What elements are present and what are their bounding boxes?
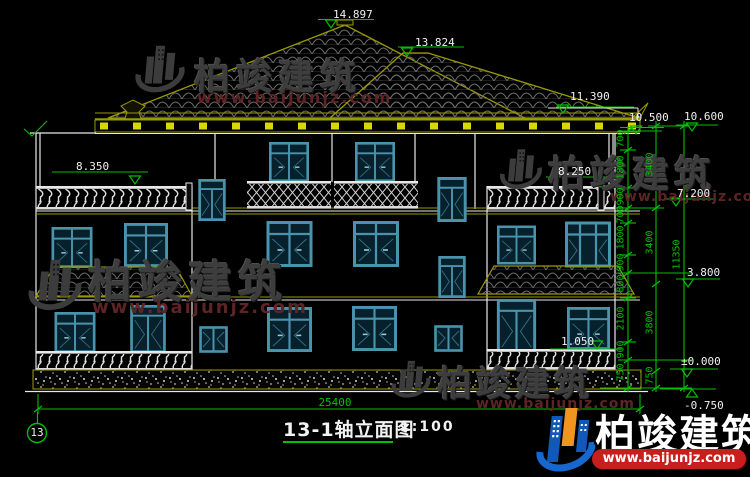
elevation-label: 13.824 <box>415 36 455 49</box>
drawing-scale: 1:100 <box>400 419 455 435</box>
dim-label: 750 <box>645 356 656 396</box>
balcony-railing <box>334 181 418 209</box>
porch-balustrade <box>36 351 192 370</box>
elevation-label: 8.350 <box>76 160 109 173</box>
small-window <box>201 328 227 352</box>
window <box>270 143 307 180</box>
window <box>567 223 610 266</box>
watermark-url: www.baijunjz.com <box>197 88 392 107</box>
elevation-label: 3.800 <box>687 266 720 279</box>
elevation-label: ±0.000 <box>681 355 721 368</box>
parapet-balustrade <box>36 183 192 210</box>
elevation-label: 10.500 <box>629 111 669 124</box>
elevation-label: 11.390 <box>570 90 610 103</box>
elevation-label: 8.250 <box>558 165 591 178</box>
overall-width-dim: 25400 <box>305 396 365 409</box>
cad-elevation-drawing: 柏竣建筑 www.baijunjz.com 柏竣建筑 www.baijunjz.… <box>0 0 750 477</box>
dim-label: 3400 <box>645 145 656 185</box>
roofs <box>108 20 648 128</box>
dim-label: 800 <box>616 264 627 304</box>
elevation-label: 14.897 <box>333 8 373 21</box>
elevation-label: 7.200 <box>677 187 710 200</box>
stair-window <box>439 178 465 220</box>
watermark-logo-icon <box>133 42 187 98</box>
stair-window <box>200 180 225 219</box>
watermark-logo-icon <box>388 358 434 402</box>
company-logo-url: www.baijunjz.com <box>592 449 746 469</box>
canopy <box>478 266 634 294</box>
window <box>356 143 393 180</box>
elevation-label: 10.600 <box>684 110 724 123</box>
dim-label: 3400 <box>645 223 656 263</box>
axis-bubble-label: 13 <box>27 426 47 439</box>
dim-label: 11350 <box>672 235 683 275</box>
small-window <box>436 327 462 351</box>
drawing-title: 13-1轴立面图 <box>283 415 415 442</box>
watermark-url: www.baijunjz.com <box>92 297 308 318</box>
window <box>56 313 94 351</box>
dim-label: 750 <box>616 353 627 393</box>
elevation-label: 1.050 <box>561 335 594 348</box>
dim-label: 3800 <box>645 303 656 343</box>
window <box>353 307 395 349</box>
door <box>498 300 534 350</box>
window <box>355 223 398 266</box>
window <box>498 227 534 263</box>
company-logo-icon <box>532 404 598 476</box>
stair-window <box>440 257 465 296</box>
watermark-logo-icon <box>498 146 544 194</box>
watermark-logo-icon <box>26 256 84 316</box>
balcony-railing <box>247 181 331 209</box>
